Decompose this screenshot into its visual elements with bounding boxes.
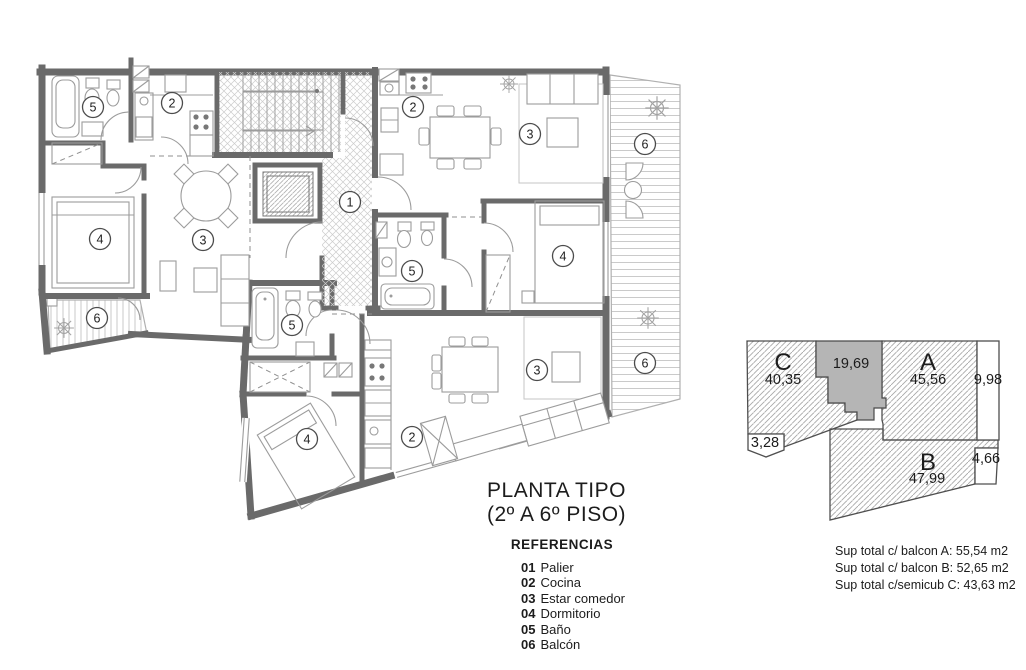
room-label-text: 2 bbox=[410, 100, 417, 114]
key-dim-328: 3,28 bbox=[751, 435, 779, 451]
room-label-living-a: 3 bbox=[520, 124, 541, 145]
room-label-living-c: 3 bbox=[193, 230, 214, 251]
room-label-balcony-a: 6 bbox=[635, 134, 656, 155]
room-label-text: 4 bbox=[560, 249, 567, 263]
room-label-text: 6 bbox=[94, 311, 101, 325]
room-label-bedroom-c: 4 bbox=[90, 229, 111, 250]
room-label-kitchen-b: 2 bbox=[402, 427, 423, 448]
legend-heading: REFERENCIAS bbox=[462, 537, 662, 552]
legend-item-label: Estar comedor bbox=[540, 591, 625, 606]
room-label-bath-c: 5 bbox=[83, 97, 104, 118]
legend-item-label: Palier bbox=[540, 560, 573, 575]
key-dim-998: 9,98 bbox=[974, 372, 1002, 388]
room-label-kitchen-a: 2 bbox=[403, 97, 424, 118]
room-label-text: 1 bbox=[347, 195, 354, 209]
room-label-text: 3 bbox=[200, 233, 207, 247]
key-area-c: 40,35 bbox=[765, 372, 801, 388]
key-dim-box-998 bbox=[977, 341, 999, 440]
room-label-bedroom-a: 4 bbox=[553, 246, 574, 267]
room-label-bath-b: 5 bbox=[282, 315, 303, 336]
room-label-balcony-c: 6 bbox=[87, 308, 108, 329]
room-label-text: 4 bbox=[304, 432, 311, 446]
key-area-core: 19,69 bbox=[833, 356, 869, 372]
stairs bbox=[219, 72, 341, 152]
key-area-b: 47,99 bbox=[909, 471, 945, 487]
room-label-kitchen-c: 2 bbox=[162, 93, 183, 114]
legend-item-num: 06 bbox=[521, 637, 535, 652]
summary-line-b: Sup total c/ balcon B: 52,65 m2 bbox=[835, 560, 1016, 577]
area-key-diagram: C 40,35 19,69 A 45,56 9,98 3,28 B 47,99 … bbox=[747, 341, 1002, 520]
plan-title-line2: (2º A 6º PISO) bbox=[449, 503, 664, 527]
room-label-living-b: 3 bbox=[527, 360, 548, 381]
floor-plan: 5 2 2 3 6 1 4 3 4 5 6 5 6 3 2 4 bbox=[37, 60, 680, 516]
room-label-palier: 1 bbox=[340, 192, 361, 213]
legend: 01Palier 02Cocina 03Estar comedor 04Dorm… bbox=[521, 560, 625, 652]
legend-item-label: Cocina bbox=[540, 575, 580, 590]
room-label-text: 2 bbox=[409, 430, 416, 444]
room-label-text: 4 bbox=[97, 232, 104, 246]
legend-item-bano: 05Baño bbox=[521, 622, 625, 637]
legend-item-label: Dormitorio bbox=[540, 606, 600, 621]
room-label-text: 3 bbox=[534, 363, 541, 377]
area-summary: Sup total c/ balcon A: 55,54 m2 Sup tota… bbox=[835, 543, 1016, 595]
summary-line-a: Sup total c/ balcon A: 55,54 m2 bbox=[835, 543, 1016, 560]
room-label-text: 6 bbox=[642, 137, 649, 151]
room-label-text: 5 bbox=[90, 100, 97, 114]
legend-item-balcon: 06Balcón bbox=[521, 637, 625, 652]
legend-item-palier: 01Palier bbox=[521, 560, 625, 575]
room-label-text: 3 bbox=[527, 127, 534, 141]
legend-item-num: 04 bbox=[521, 606, 535, 621]
living-a bbox=[419, 74, 603, 183]
plan-title-line1: PLANTA TIPO bbox=[449, 479, 664, 503]
legend-item-label: Balcón bbox=[540, 637, 580, 652]
room-label-bath-a: 5 bbox=[402, 261, 423, 282]
room-label-text: 5 bbox=[289, 318, 296, 332]
key-dim-466: 4,66 bbox=[972, 451, 1000, 467]
legend-item-num: 01 bbox=[521, 560, 535, 575]
summary-line-c: Sup total c/semicub C: 43,63 m2 bbox=[835, 577, 1016, 594]
legend-item-num: 05 bbox=[521, 622, 535, 637]
legend-item-num: 03 bbox=[521, 591, 535, 606]
room-label-text: 5 bbox=[409, 264, 416, 278]
legend-item-num: 02 bbox=[521, 575, 535, 590]
plan-title: PLANTA TIPO (2º A 6º PISO) bbox=[449, 479, 664, 527]
legend-item-cocina: 02Cocina bbox=[521, 575, 625, 590]
room-label-balcony-b: 6 bbox=[635, 353, 656, 374]
room-label-bedroom-b: 4 bbox=[297, 429, 318, 450]
legend-item-label: Baño bbox=[540, 622, 570, 637]
legend-item-estar-comedor: 03Estar comedor bbox=[521, 591, 625, 606]
page: { "title": { "line1": "PLANTA TIPO", "li… bbox=[0, 0, 1026, 670]
room-label-text: 6 bbox=[642, 356, 649, 370]
living-b bbox=[420, 317, 609, 466]
kitchen-b bbox=[365, 340, 391, 470]
legend-item-dormitorio: 04Dormitorio bbox=[521, 606, 625, 621]
room-label-text: 2 bbox=[169, 96, 176, 110]
key-area-a: 45,56 bbox=[910, 372, 946, 388]
elevator bbox=[255, 165, 320, 221]
